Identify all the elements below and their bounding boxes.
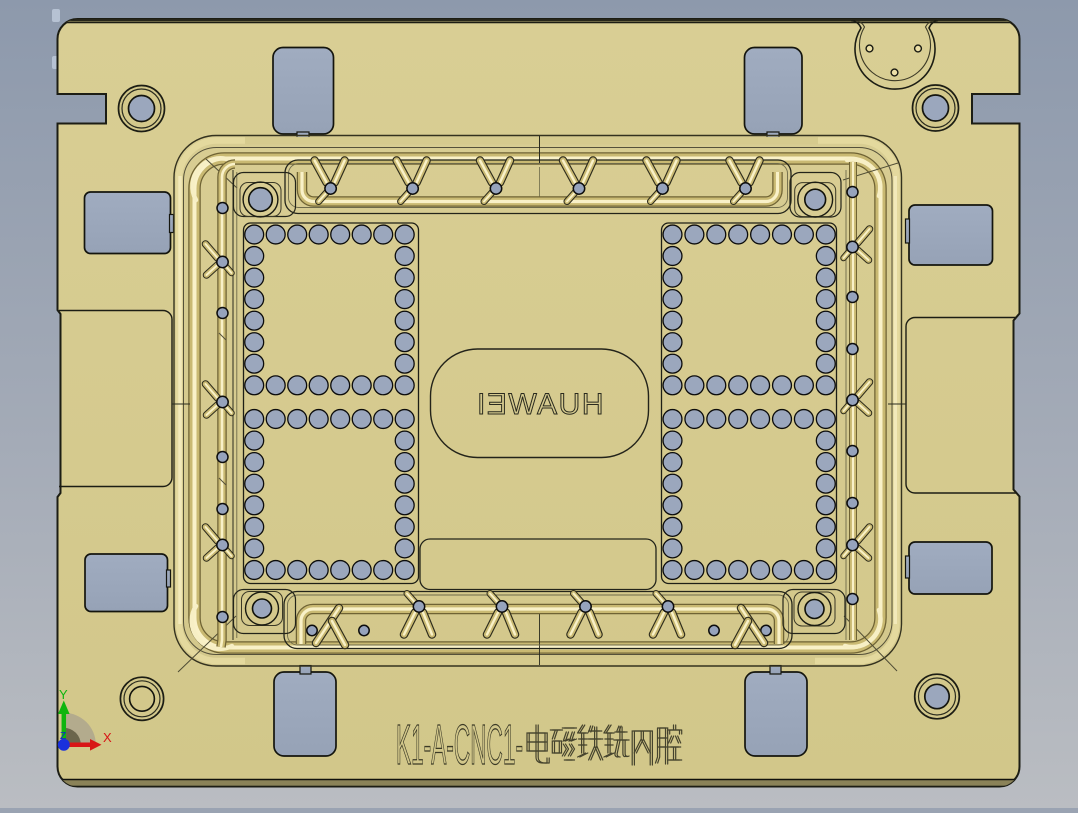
svg-text:HUAWEI: HUAWEI — [476, 388, 604, 421]
svg-text:Y: Y — [59, 687, 68, 702]
svg-text:K1-A-CNC1-: K1-A-CNC1- — [396, 713, 523, 777]
svg-text:X: X — [103, 730, 112, 745]
